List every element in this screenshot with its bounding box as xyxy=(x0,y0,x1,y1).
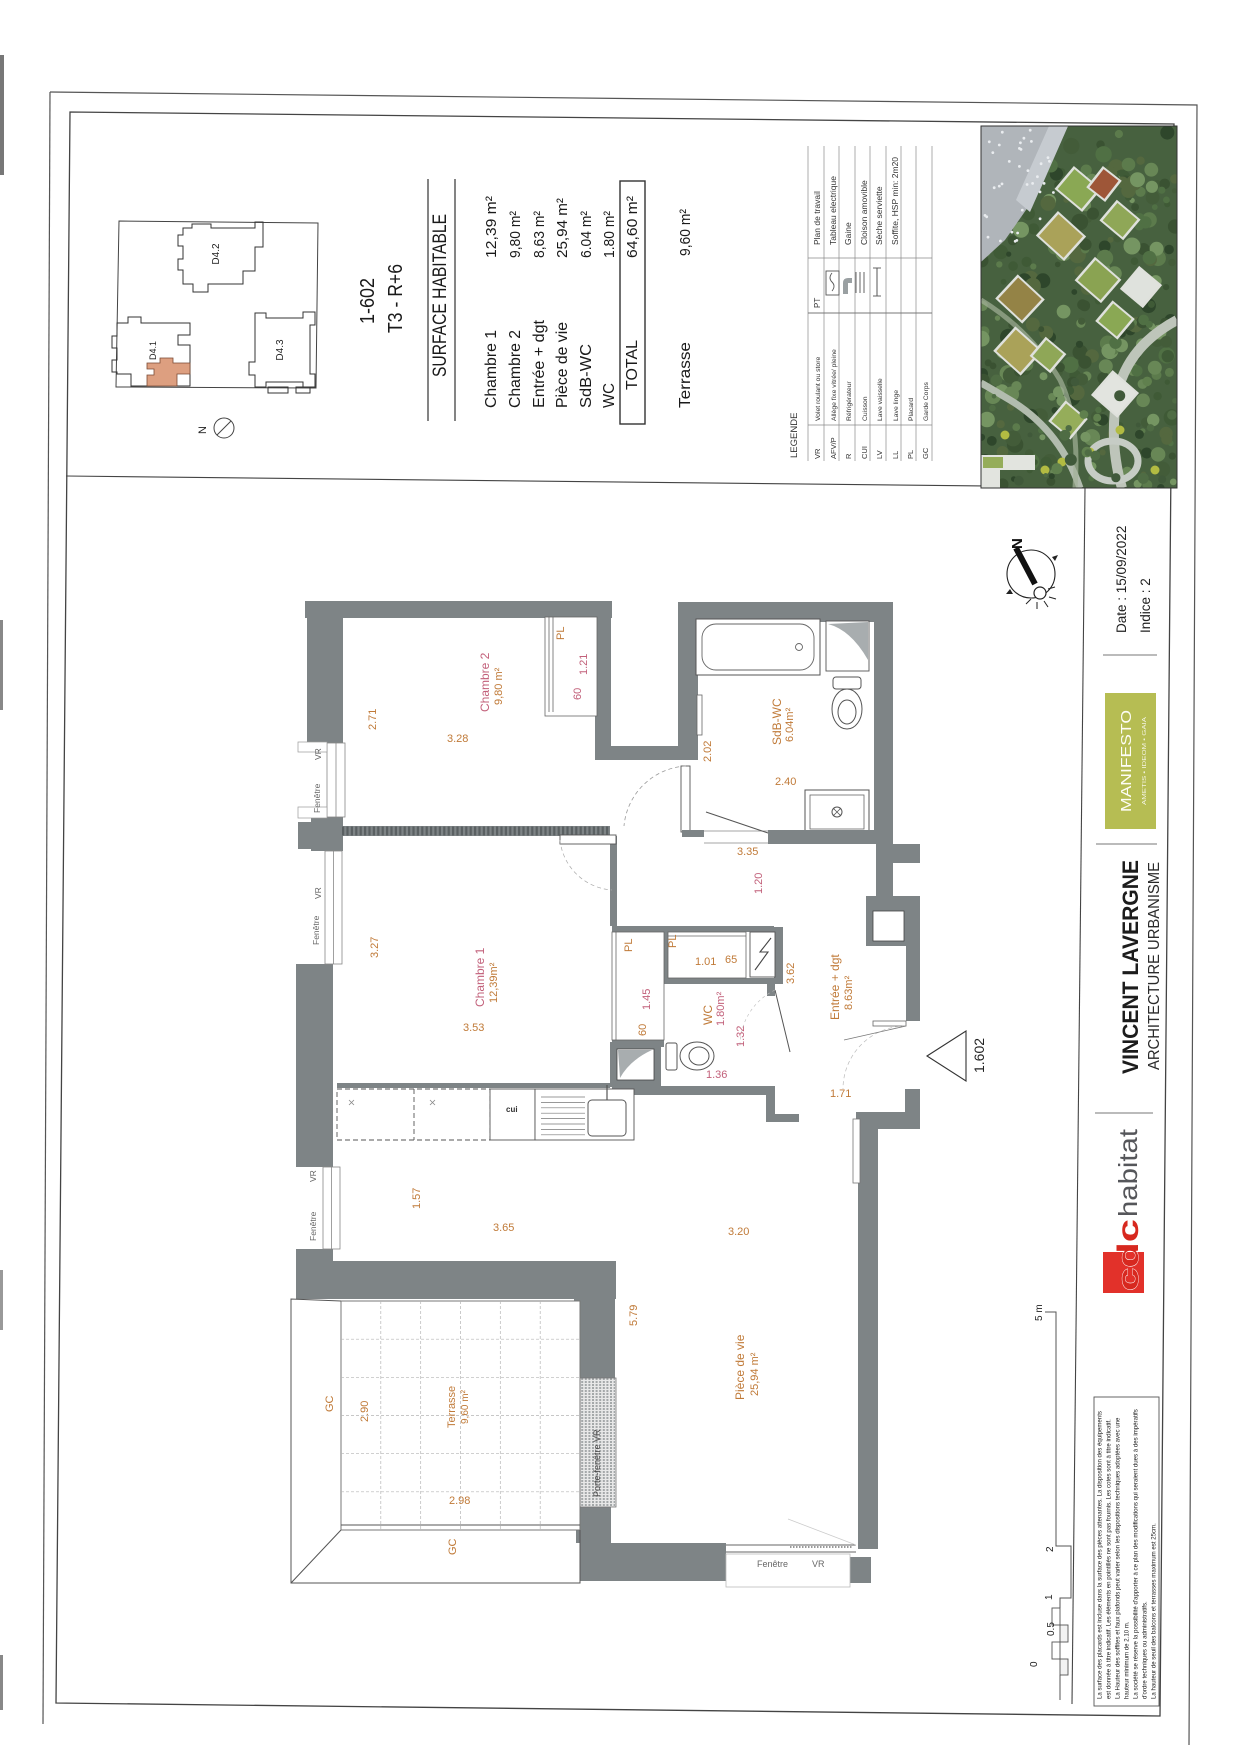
svg-text:3.65: 3.65 xyxy=(493,1222,514,1234)
svg-text:Lave vaisselle: Lave vaisselle xyxy=(877,378,884,421)
svg-text:Fenêtre: Fenêtre xyxy=(312,783,322,813)
svg-text:GC: GC xyxy=(921,447,930,459)
svg-text:Date : 15/09/2022: Date : 15/09/2022 xyxy=(1114,526,1129,633)
svg-text:La surface des placards est in: La surface des placards est incluse dans… xyxy=(1097,1411,1104,1699)
svg-text:Gaine: Gaine xyxy=(843,222,853,245)
svg-text:Entrée + dgt: Entrée + dgt xyxy=(531,319,548,408)
svg-text:Chambre 1: Chambre 1 xyxy=(483,330,500,408)
svg-text:1.45: 1.45 xyxy=(641,989,653,1010)
svg-text:PT: PT xyxy=(813,298,822,308)
svg-text:6.04 m²: 6.04 m² xyxy=(578,211,595,258)
svg-text:hauteur minimum de 2.10 m.: hauteur minimum de 2.10 m. xyxy=(1124,1621,1131,1699)
svg-text:1.32: 1.32 xyxy=(735,1026,747,1047)
svg-text:9,60 m²: 9,60 m² xyxy=(677,209,694,256)
svg-text:1-602: 1-602 xyxy=(357,278,379,324)
svg-text:Indice : 2: Indice : 2 xyxy=(1138,578,1153,633)
svg-text:1.01: 1.01 xyxy=(695,956,716,968)
svg-text:60: 60 xyxy=(637,1024,649,1036)
svg-text:Cloison amovible: Cloison amovible xyxy=(859,180,869,245)
svg-text:PL: PL xyxy=(906,450,915,459)
svg-text:3.20: 3.20 xyxy=(728,1226,749,1238)
svg-text:Plan de travail: Plan de travail xyxy=(812,191,822,245)
svg-text:VR: VR xyxy=(812,1559,825,1569)
svg-text:Tableau electrique: Tableau electrique xyxy=(828,176,838,245)
svg-text:5 m: 5 m xyxy=(1034,1304,1045,1321)
svg-text:1: 1 xyxy=(1044,1594,1055,1600)
svg-text:SdB-WC: SdB-WC xyxy=(770,698,784,745)
svg-text:WC: WC xyxy=(701,1005,715,1025)
svg-text:Volet roulant ou store: Volet roulant ou store xyxy=(815,357,822,421)
svg-text:LL: LL xyxy=(891,451,900,459)
svg-text:3.53: 3.53 xyxy=(463,1022,484,1034)
svg-text:9,80 m²: 9,80 m² xyxy=(507,211,524,258)
svg-text:ARCHITECTURE URBANISME: ARCHITECTURE URBANISME xyxy=(1146,862,1163,1070)
svg-text:LEGENDE: LEGENDE xyxy=(789,413,800,458)
svg-text:GC: GC xyxy=(324,1395,336,1412)
svg-text:12,39 m²: 12,39 m² xyxy=(483,196,500,258)
svg-text:N: N xyxy=(1009,538,1026,549)
svg-text:25,94 m²: 25,94 m² xyxy=(749,1352,761,1396)
svg-text:8,63 m²: 8,63 m² xyxy=(531,211,548,258)
svg-text:Terrasse: Terrasse xyxy=(677,342,694,408)
svg-text:Terrasse: Terrasse xyxy=(446,1386,458,1428)
svg-text:T3 - R+6: T3 - R+6 xyxy=(385,264,407,333)
svg-text:d'ordre techniques ou administ: d'ordre techniques ou administratifs. xyxy=(1142,1601,1149,1699)
svg-text:GC: GC xyxy=(447,1538,459,1555)
svg-text:CUI: CUI xyxy=(860,446,869,459)
svg-text:2.02: 2.02 xyxy=(702,741,714,762)
svg-text:Porte-fenêtre VR: Porte-fenêtre VR xyxy=(592,1429,602,1497)
svg-text:habitat: habitat xyxy=(1113,1128,1143,1217)
svg-text:2.71: 2.71 xyxy=(367,709,379,730)
svg-text:TOTAL: TOTAL xyxy=(624,340,641,390)
svg-text:Fenêtre: Fenêtre xyxy=(308,1211,318,1241)
svg-text:1.71: 1.71 xyxy=(830,1088,851,1100)
svg-text:2.90: 2.90 xyxy=(359,1401,371,1422)
svg-text:Allège fixe vitrée/ pleine: Allège fixe vitrée/ pleine xyxy=(831,349,838,421)
svg-text:1.21: 1.21 xyxy=(578,654,590,675)
svg-text:D4.1: D4.1 xyxy=(148,341,158,360)
svg-text:LV: LV xyxy=(875,450,884,459)
svg-text:La hauteur de seuil des balcon: La hauteur de seuil des balcons et terra… xyxy=(1151,1523,1158,1699)
svg-text:MANIFESTO: MANIFESTO xyxy=(1119,710,1135,812)
svg-text:PL: PL xyxy=(555,627,567,640)
svg-text:2.40: 2.40 xyxy=(775,776,796,788)
svg-text:La société se réserve la possi: La société se réserve la possibilité d'a… xyxy=(1133,1409,1140,1699)
svg-text:Pièce de vie: Pièce de vie xyxy=(554,322,571,408)
svg-text:cui: cui xyxy=(506,1105,518,1114)
svg-text:12,39m²: 12,39m² xyxy=(488,962,500,1003)
svg-text:Chambre 2: Chambre 2 xyxy=(507,330,524,408)
svg-text:0.5: 0.5 xyxy=(1046,1622,1057,1636)
svg-text:N: N xyxy=(197,426,209,434)
svg-text:WC: WC xyxy=(601,383,618,408)
svg-text:9,80 m²: 9,80 m² xyxy=(493,667,505,705)
svg-text:D4.2: D4.2 xyxy=(211,243,222,265)
svg-text:Chambre 1: Chambre 1 xyxy=(473,947,487,1007)
svg-text:2.98: 2.98 xyxy=(449,1495,470,1507)
svg-text:64,60 m²: 64,60 m² xyxy=(624,196,641,258)
svg-text:5.79: 5.79 xyxy=(628,1305,640,1326)
svg-text:Lave linge: Lave linge xyxy=(893,390,900,421)
svg-text:3.27: 3.27 xyxy=(369,937,381,958)
svg-text:1.80 m²: 1.80 m² xyxy=(601,211,618,258)
svg-text:65: 65 xyxy=(725,954,737,966)
svg-text:est donnée à titre indicatif.: est donnée à titre indicatif. Les élémen… xyxy=(1106,1419,1113,1699)
svg-text:Chambre 2: Chambre 2 xyxy=(478,652,492,712)
svg-text:D4.3: D4.3 xyxy=(275,339,286,361)
svg-text:VR: VR xyxy=(313,887,323,899)
svg-text:Pièce de vie: Pièce de vie xyxy=(733,1334,747,1400)
svg-text:9,60 m²: 9,60 m² xyxy=(460,1389,471,1424)
svg-text:1.36: 1.36 xyxy=(706,1069,727,1081)
svg-text:VR: VR xyxy=(308,1170,318,1182)
svg-text:VR: VR xyxy=(313,748,323,760)
svg-text:La Hauteur des soffites et fau: La Hauteur des soffites et faux plafonds… xyxy=(1115,1417,1122,1699)
svg-text:3.62: 3.62 xyxy=(785,963,797,984)
svg-text:2: 2 xyxy=(1045,1546,1056,1552)
svg-text:Fenêtre: Fenêtre xyxy=(311,915,321,945)
svg-text:Fenêtre: Fenêtre xyxy=(757,1559,788,1569)
svg-text:3.28: 3.28 xyxy=(447,733,468,745)
svg-text:SdB-WC: SdB-WC xyxy=(578,344,595,408)
svg-text:Garde Corps: Garde Corps xyxy=(923,381,930,421)
svg-text:1.20: 1.20 xyxy=(753,873,765,894)
svg-text:PL: PL xyxy=(667,935,679,948)
svg-text:Placard: Placard xyxy=(908,398,915,421)
svg-text:VR: VR xyxy=(813,448,822,459)
svg-text:0: 0 xyxy=(1029,1661,1040,1667)
svg-text:1.57: 1.57 xyxy=(411,1188,423,1209)
svg-text:6.04m²: 6.04m² xyxy=(784,707,796,742)
svg-text:SURFACE HABITABLE: SURFACE HABITABLE xyxy=(430,214,451,377)
svg-text:1.80m²: 1.80m² xyxy=(715,991,727,1026)
svg-text:Entrée + dgt: Entrée + dgt xyxy=(828,954,842,1020)
svg-text:cdc: cdc xyxy=(1112,1219,1145,1291)
svg-text:AMETIS • IDEOM • GAIA: AMETIS • IDEOM • GAIA xyxy=(1142,717,1148,805)
svg-text:PL: PL xyxy=(623,939,635,952)
svg-text:1.602: 1.602 xyxy=(971,1038,987,1073)
svg-text:Soffite, HSP min: 2m20: Soffite, HSP min: 2m20 xyxy=(890,157,900,245)
svg-text:60: 60 xyxy=(572,688,584,700)
svg-text:25,94 m²: 25,94 m² xyxy=(554,198,571,258)
svg-text:Sèche serviette: Sèche serviette xyxy=(874,186,884,245)
svg-text:Réfrigérateur: Réfrigérateur xyxy=(846,381,853,421)
svg-text:Cuisson: Cuisson xyxy=(862,396,869,421)
svg-text:VINCENT LAVERGNE: VINCENT LAVERGNE xyxy=(1118,860,1143,1074)
svg-text:8.63m²: 8.63m² xyxy=(843,975,855,1010)
svg-text:AFV/P: AFV/P xyxy=(829,437,838,459)
svg-text:3.35: 3.35 xyxy=(737,846,758,858)
svg-text:R: R xyxy=(844,453,853,459)
